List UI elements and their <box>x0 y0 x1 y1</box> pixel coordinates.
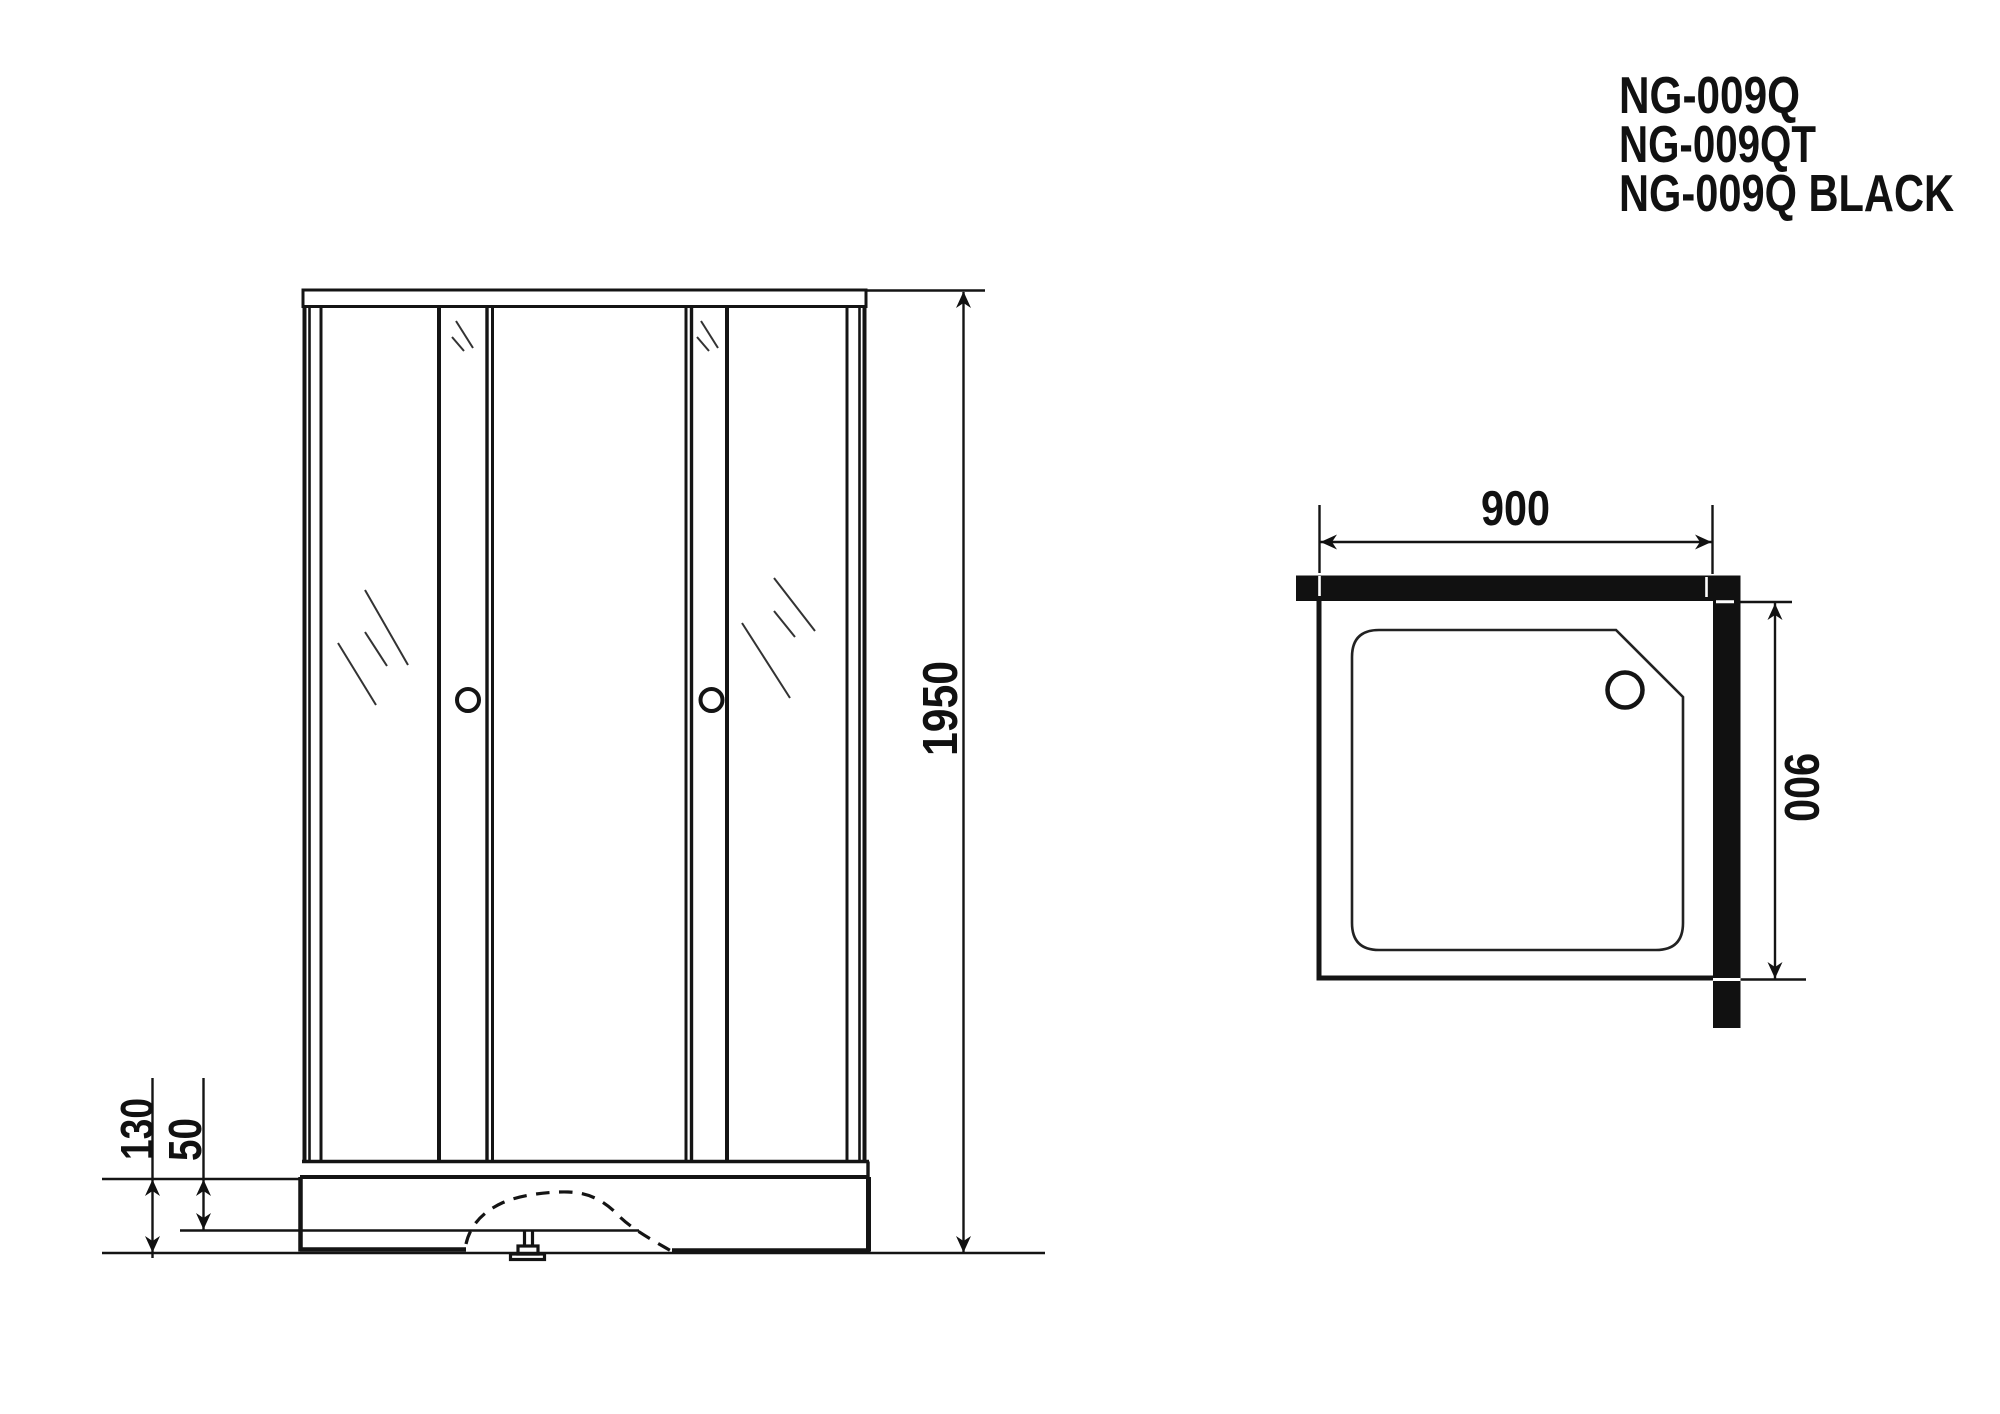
svg-text:1950: 1950 <box>914 661 968 756</box>
svg-text:NG-009Q BLACK: NG-009Q BLACK <box>1619 165 1954 223</box>
svg-text:130: 130 <box>111 1098 163 1160</box>
svg-text:50: 50 <box>159 1118 211 1161</box>
svg-text:900: 900 <box>1774 753 1828 822</box>
svg-text:900: 900 <box>1481 482 1550 536</box>
